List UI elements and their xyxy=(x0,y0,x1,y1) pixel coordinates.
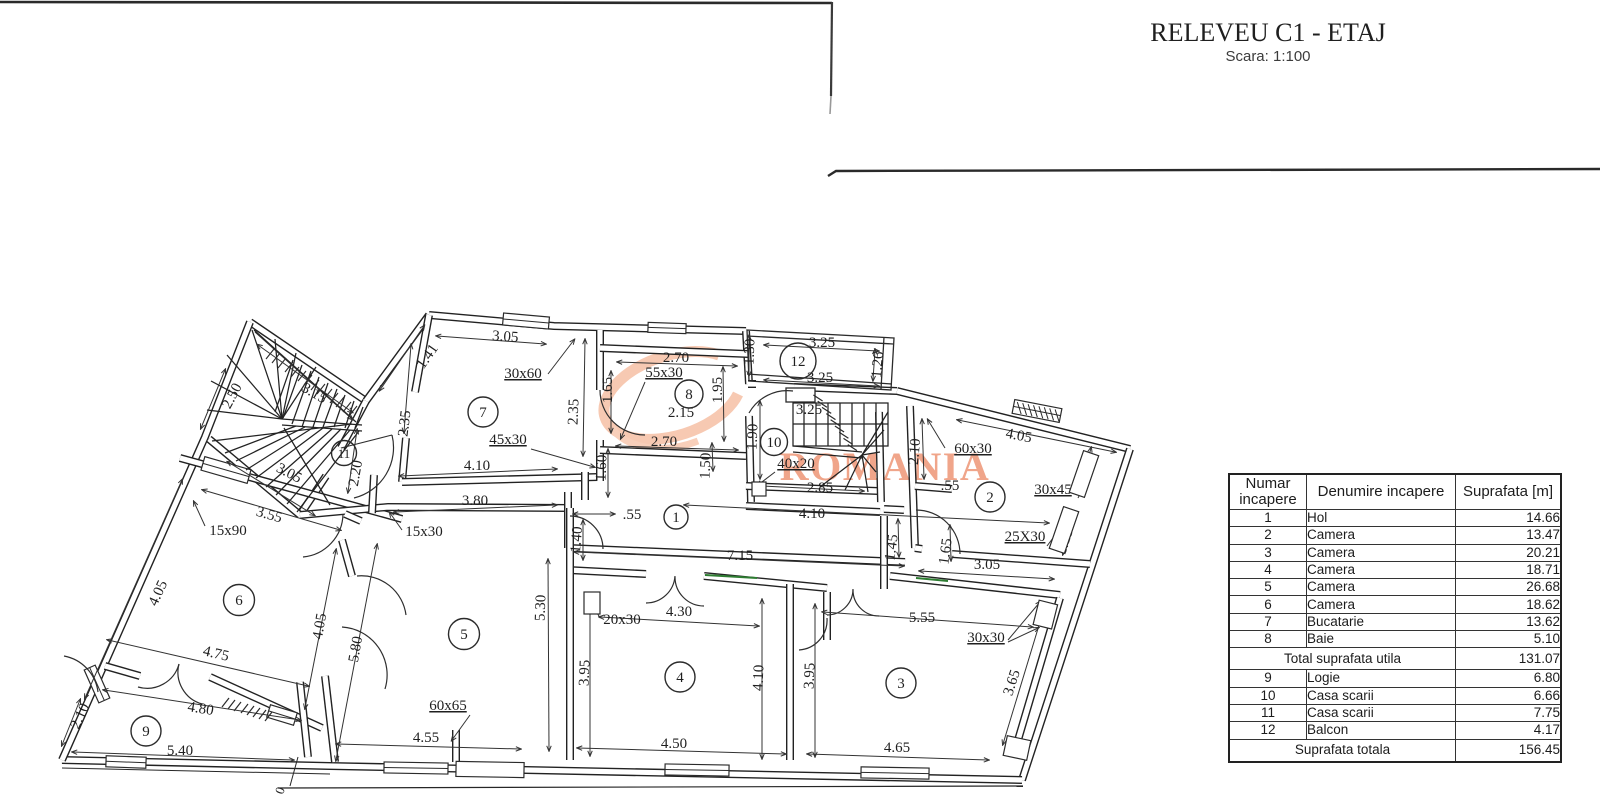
svg-text:1: 1 xyxy=(672,510,680,526)
svg-text:4.10: 4.10 xyxy=(799,506,825,522)
svg-text:2.10: 2.10 xyxy=(906,438,924,466)
svg-text:4.10: 4.10 xyxy=(751,664,768,691)
svg-text:1.40: 1.40 xyxy=(568,526,586,554)
svg-text:30x60: 30x60 xyxy=(504,366,542,382)
svg-text:11: 11 xyxy=(338,446,351,461)
svg-text:55x30: 55x30 xyxy=(645,365,683,381)
svg-text:9: 9 xyxy=(142,724,150,740)
svg-text:7.15: 7.15 xyxy=(727,548,753,564)
svg-text:.55: .55 xyxy=(941,478,960,494)
svg-text:1.60: 1.60 xyxy=(594,454,611,481)
svg-text:20x30: 20x30 xyxy=(603,612,641,628)
svg-text:1.26: 1.26 xyxy=(869,350,887,378)
svg-text:4.65: 4.65 xyxy=(884,740,910,756)
svg-text:3.25: 3.25 xyxy=(807,370,833,386)
svg-text:5.55: 5.55 xyxy=(909,610,935,626)
svg-text:15x30: 15x30 xyxy=(405,524,443,540)
svg-text:6: 6 xyxy=(235,593,243,609)
svg-text:12: 12 xyxy=(791,354,806,370)
svg-text:3.25: 3.25 xyxy=(809,335,835,351)
svg-text:4.55: 4.55 xyxy=(413,730,439,746)
svg-text:4: 4 xyxy=(676,670,684,686)
svg-text:2.35: 2.35 xyxy=(566,398,583,425)
svg-text:30x30: 30x30 xyxy=(967,630,1005,646)
svg-text:3: 3 xyxy=(897,676,905,692)
svg-text:60x65: 60x65 xyxy=(429,698,467,714)
svg-text:10: 10 xyxy=(767,435,782,451)
svg-text:8: 8 xyxy=(685,387,693,403)
svg-text:1.65: 1.65 xyxy=(600,377,616,403)
svg-text:2: 2 xyxy=(986,490,994,506)
svg-text:45x30: 45x30 xyxy=(489,432,527,448)
svg-text:3.25: 3.25 xyxy=(796,402,822,418)
svg-text:3.95: 3.95 xyxy=(802,662,819,689)
svg-text:4.30: 4.30 xyxy=(666,604,692,620)
svg-text:15x90: 15x90 xyxy=(209,523,247,539)
svg-text:4.10: 4.10 xyxy=(464,458,490,474)
svg-text:2.85: 2.85 xyxy=(807,480,833,496)
svg-text:5.30: 5.30 xyxy=(533,594,550,621)
svg-text:Scara: 1:100: Scara: 1:100 xyxy=(1225,48,1310,65)
svg-text:2.70: 2.70 xyxy=(663,350,689,366)
svg-text:5: 5 xyxy=(460,627,468,643)
svg-text:30x45: 30x45 xyxy=(1034,482,1072,498)
svg-text:3.05: 3.05 xyxy=(974,557,1000,573)
svg-text:1.95: 1.95 xyxy=(710,377,726,403)
svg-text:4.50: 4.50 xyxy=(661,736,687,752)
svg-text:1.90: 1.90 xyxy=(745,423,762,450)
svg-text:60x30: 60x30 xyxy=(954,441,992,457)
svg-text:3.05: 3.05 xyxy=(492,328,519,346)
svg-text:RELEVEU C1 - ETAJ: RELEVEU C1 - ETAJ xyxy=(1150,18,1386,47)
svg-text:3.95: 3.95 xyxy=(577,659,594,686)
svg-text:25X30: 25X30 xyxy=(1005,529,1046,545)
svg-text:2.35: 2.35 xyxy=(395,410,414,438)
svg-text:3.80: 3.80 xyxy=(462,493,488,509)
svg-text:2.70: 2.70 xyxy=(651,434,677,450)
svg-text:1.30: 1.30 xyxy=(742,338,759,365)
svg-text:40x20: 40x20 xyxy=(777,456,815,472)
svg-text:7: 7 xyxy=(479,405,487,421)
svg-text:5.40: 5.40 xyxy=(167,743,193,759)
svg-text:1.50: 1.50 xyxy=(698,452,715,479)
svg-text:.55: .55 xyxy=(623,507,642,523)
